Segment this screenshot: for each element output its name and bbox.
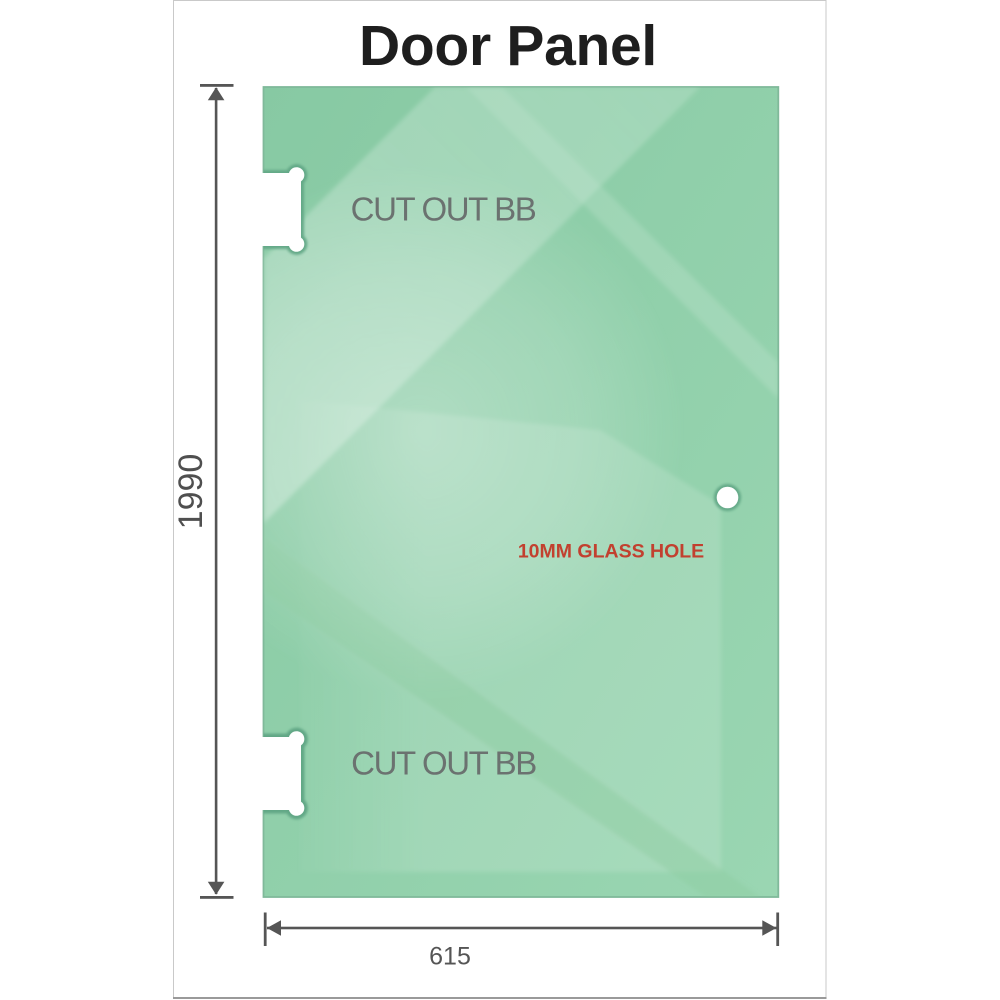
- svg-text:1990: 1990: [172, 454, 210, 530]
- svg-text:CUT OUT BB: CUT OUT BB: [351, 745, 536, 782]
- svg-text:CUT OUT BB: CUT OUT BB: [351, 191, 536, 228]
- svg-text:Door Panel: Door Panel: [359, 14, 657, 78]
- svg-text:10MM GLASS HOLE: 10MM GLASS HOLE: [518, 541, 704, 563]
- svg-text:615: 615: [429, 943, 471, 971]
